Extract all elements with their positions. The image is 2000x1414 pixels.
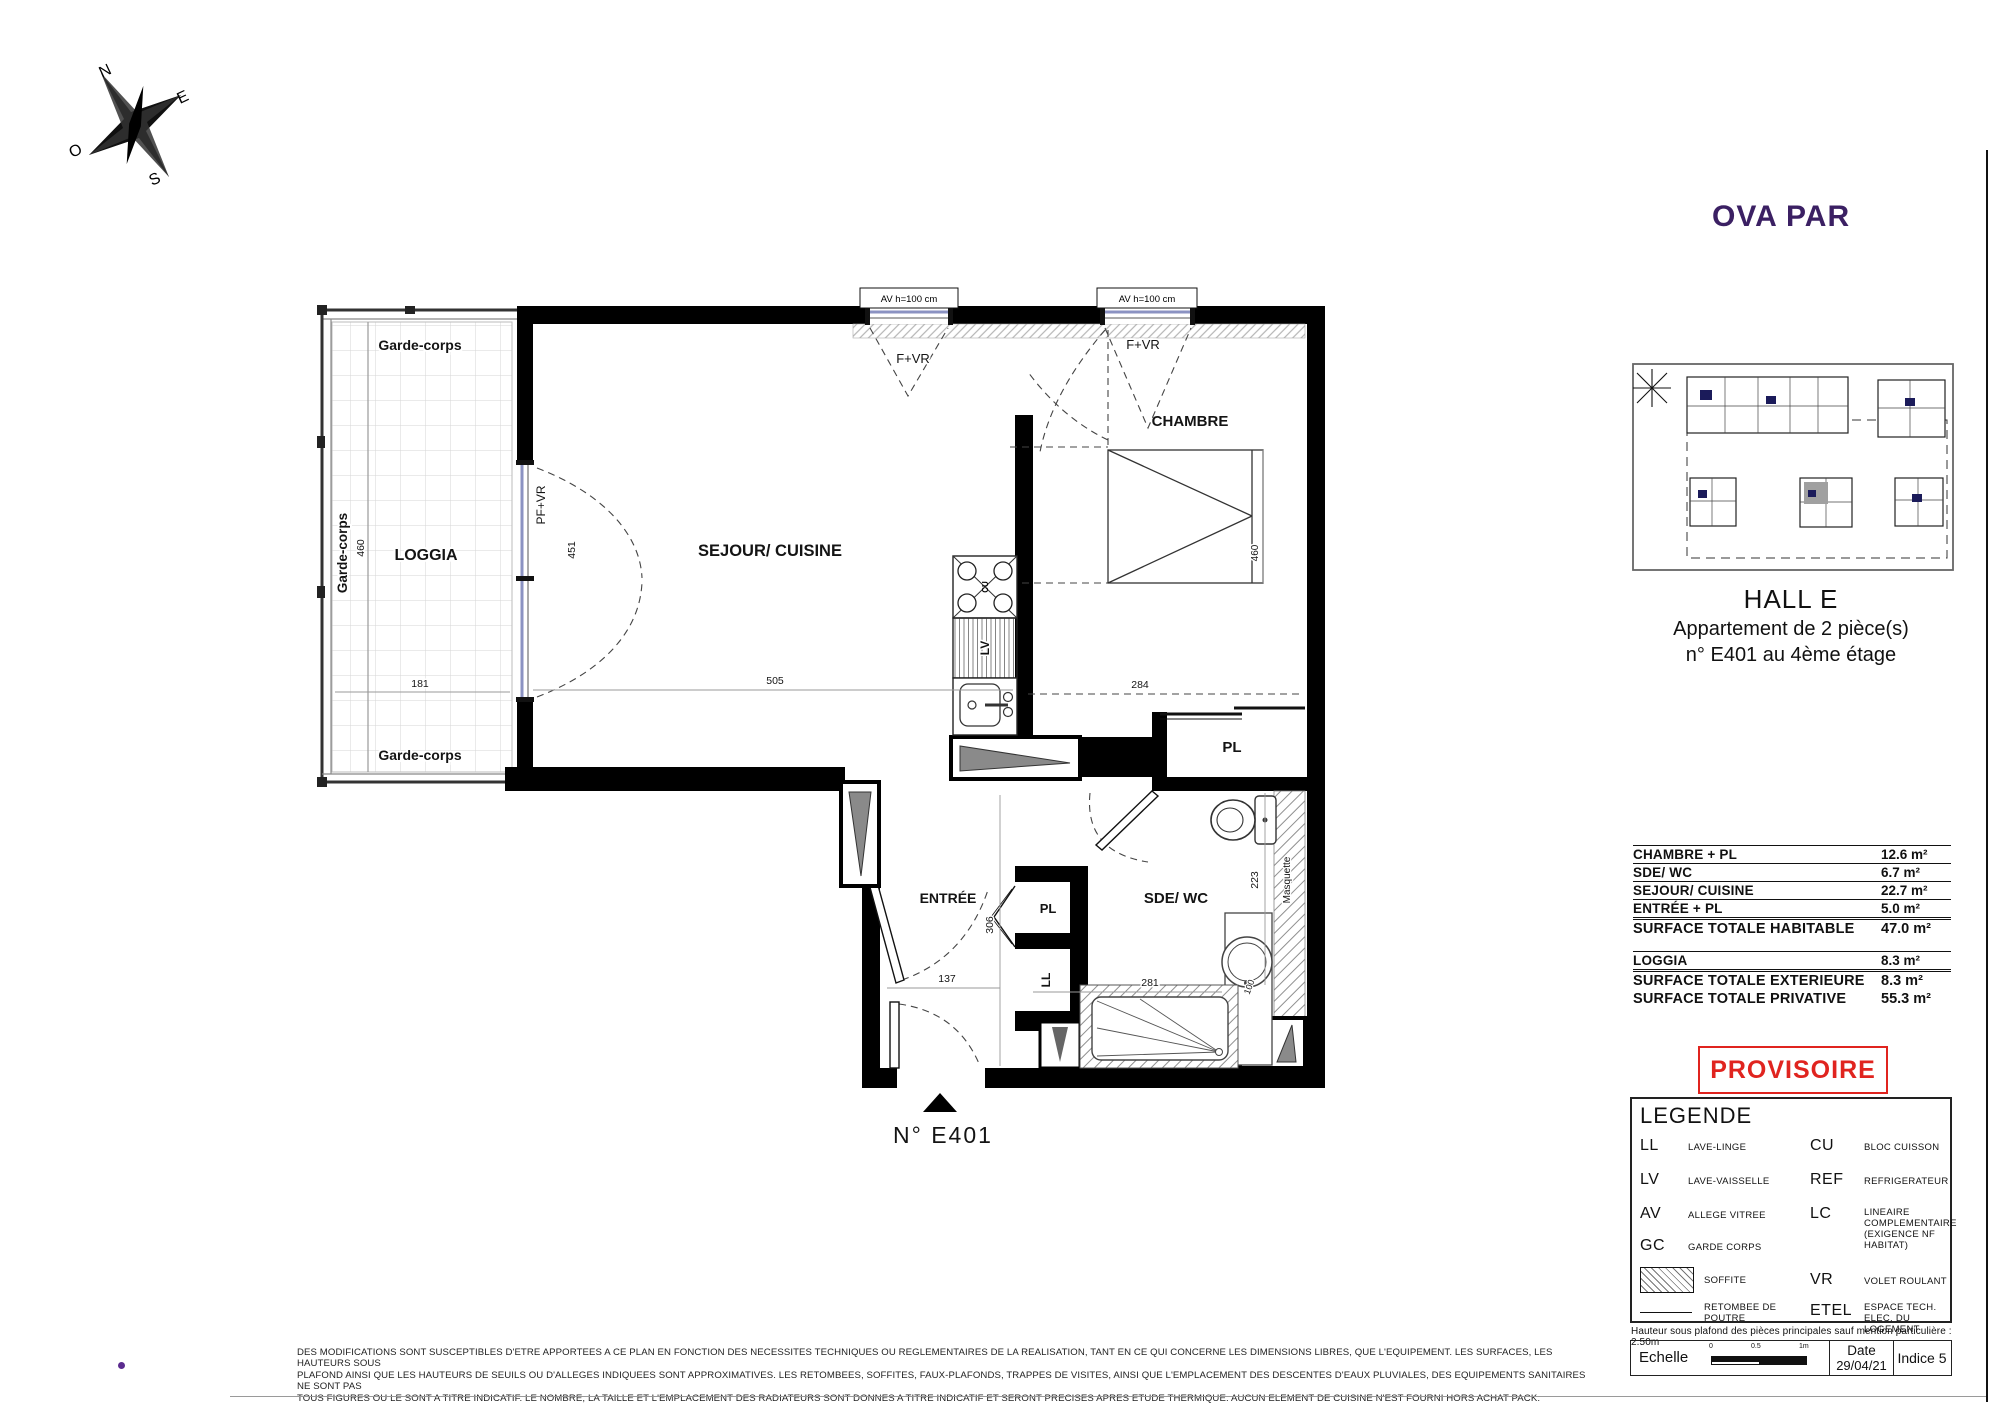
legend-etel-abbr: ETEL xyxy=(1810,1302,1852,1320)
legend-lv-desc: LAVE-VAISSELLE xyxy=(1688,1176,1769,1187)
date-label: Date xyxy=(1830,1343,1893,1358)
shower xyxy=(1080,985,1238,1068)
av-label-2: AV h=100 cm xyxy=(1119,294,1176,305)
surface-table: CHAMBRE + PL12.6 m² SDE/ WC6.7 m² SEJOUR… xyxy=(1633,845,1951,1008)
legend-box: LEGENDE LL LAVE-LINGE LV LAVE-VAISSELLE … xyxy=(1630,1097,1952,1323)
legend-cu-desc: BLOC CUISSON xyxy=(1864,1142,1939,1153)
label-garde-corps-left: Garde-corps xyxy=(335,513,350,593)
table-row: ENTRÉE + PL5.0 m² xyxy=(1633,899,1951,917)
scale-tick-0: 0 xyxy=(1709,1343,1713,1350)
toilet xyxy=(1211,796,1276,844)
scale-cell: Echelle 0 0.5 1m xyxy=(1631,1341,1829,1375)
scale-tick-05: 0.5 xyxy=(1751,1343,1761,1350)
hall-title: HALL E xyxy=(1630,584,1952,615)
apartment-type: Appartement de 2 pièce(s) xyxy=(1630,618,1952,641)
bed xyxy=(1108,450,1263,583)
lv-label: LV xyxy=(978,641,992,655)
site-plan xyxy=(1633,364,1953,570)
soffite-band xyxy=(853,324,1305,338)
label-entree: ENTRÉE xyxy=(920,890,977,906)
compass-rose-icon: N E S O xyxy=(67,61,192,189)
scale-tick-1m: 1m xyxy=(1799,1343,1809,1350)
dim-chambre-h: 460 xyxy=(1250,544,1261,561)
title-bar: Echelle 0 0.5 1m Date 29/04/21 Indice 5 xyxy=(1630,1340,1952,1376)
dim-chambre-w: 284 xyxy=(1131,679,1149,691)
table-row-total-exterieure: SURFACE TOTALE EXTERIEURE8.3 m² xyxy=(1633,972,1951,990)
label-sde: SDE/ WC xyxy=(1144,890,1208,907)
legend-lc-abbr: LC xyxy=(1810,1205,1831,1223)
legend-vr-abbr: VR xyxy=(1810,1271,1833,1289)
legend-soffite-desc: SOFFITE xyxy=(1704,1275,1746,1286)
pl-chambre-doors xyxy=(1160,708,1305,719)
legend-ll-abbr: LL xyxy=(1640,1137,1659,1155)
disclaimer-line-3: TOUS FIGURES OU LE SONT A TITRE INDICATI… xyxy=(297,1393,1587,1404)
dim-sejour-w: 505 xyxy=(766,675,784,687)
disclaimer-line-1: DES MODIFICATIONS SONT SUSCEPTIBLES D'ET… xyxy=(297,1347,1587,1370)
label-pl-chambre: PL xyxy=(1222,739,1241,756)
cu-label: CU xyxy=(981,581,990,593)
compass-n: N xyxy=(97,61,115,81)
legend-ll-desc: LAVE-LINGE xyxy=(1688,1142,1746,1153)
scale-label: Echelle xyxy=(1639,1349,1688,1366)
label-chambre: CHAMBRE xyxy=(1152,413,1229,430)
dim-loggia-h: 460 xyxy=(355,539,367,557)
dim-entree-w: 137 xyxy=(938,973,956,985)
compass-s: S xyxy=(147,170,164,190)
table-row: SEJOUR/ CUISINE22.7 m² xyxy=(1633,881,1951,899)
legend-cu-abbr: CU xyxy=(1810,1137,1834,1155)
purple-mark-icon xyxy=(118,1362,125,1369)
retombee-line-icon xyxy=(1640,1312,1692,1313)
provisoire-stamp: PROVISOIRE xyxy=(1698,1046,1888,1094)
legend-ref-abbr: REF xyxy=(1810,1171,1844,1189)
legend-ref-desc: REFRIGERATEUR xyxy=(1864,1176,1948,1187)
label-sejour: SEJOUR/ CUISINE xyxy=(698,542,842,560)
scale-bar-icon xyxy=(1711,1356,1807,1365)
door-swings xyxy=(537,328,1302,1066)
label-unit-number: N° E401 xyxy=(893,1122,993,1148)
dim-sde-w: 281 xyxy=(1141,977,1159,989)
dim-entree-h: 306 xyxy=(984,916,996,934)
brand-logo: OVA PAR xyxy=(1712,200,1850,234)
legend-lc-desc: LINEAIRE COMPLEMENTAIRE (EXIGENCE NF HAB… xyxy=(1864,1207,1952,1251)
dim-sde-h: 223 xyxy=(1249,871,1261,889)
legend-title: LEGENDE xyxy=(1640,1103,1950,1129)
label-garde-corps-bottom: Garde-corps xyxy=(378,747,461,763)
windows xyxy=(516,305,1195,702)
label-fvr-2: F+VR xyxy=(1126,337,1160,352)
hall-block: HALL E Appartement de 2 pièce(s) n° E401… xyxy=(1630,584,1952,667)
legend-vr-desc: VOLET ROULANT xyxy=(1864,1276,1947,1287)
label-pl-entree: PL xyxy=(1040,901,1057,916)
date-cell: Date 29/04/21 xyxy=(1829,1341,1893,1375)
label-pfvr: PF+VR xyxy=(534,485,548,524)
kitchen-block: CU LV xyxy=(953,556,1017,735)
label-fvr-1: F+VR xyxy=(896,351,930,366)
label-ll: LL xyxy=(1039,973,1053,988)
label-garde-corps-top: Garde-corps xyxy=(378,337,461,353)
table-row: SDE/ WC6.7 m² xyxy=(1633,863,1951,881)
legend-av-abbr: AV xyxy=(1640,1205,1661,1223)
date-value: 29/04/21 xyxy=(1830,1358,1893,1373)
table-row-total-privative: SURFACE TOTALE PRIVATIVE55.3 m² xyxy=(1633,990,1951,1008)
entrance-triangle-icon xyxy=(923,1093,957,1112)
soffite-swatch-icon xyxy=(1640,1267,1694,1293)
label-masquette: Masquette xyxy=(1282,856,1293,903)
sheet-bottom-rule xyxy=(230,1396,1986,1397)
apartment-number: n° E401 au 4ème étage xyxy=(1630,644,1952,667)
label-loggia: LOGGIA xyxy=(394,547,458,564)
legend-gc-desc: GARDE CORPS xyxy=(1688,1242,1762,1253)
table-row: CHAMBRE + PL12.6 m² xyxy=(1633,845,1951,863)
compass-e: E xyxy=(175,88,192,108)
table-row-loggia: LOGGIA8.3 m² xyxy=(1633,951,1951,972)
legend-retombee-desc: RETOMBEE DE POUTRE xyxy=(1704,1302,1784,1324)
sheet-right-border xyxy=(1986,150,1988,1402)
dim-sejour-door: 451 xyxy=(566,541,578,559)
dim-loggia-w: 181 xyxy=(411,678,429,690)
legend-av-desc: ALLEGE VITREE xyxy=(1688,1210,1766,1221)
legend-gc-abbr: GC xyxy=(1640,1237,1665,1255)
compass-o: O xyxy=(67,141,85,162)
av-label-1: AV h=100 cm xyxy=(881,294,938,305)
legend-lv-abbr: LV xyxy=(1640,1171,1659,1189)
av-boxes: AV h=100 cm AV h=100 cm xyxy=(860,288,1197,308)
indice-cell: Indice 5 xyxy=(1893,1341,1950,1375)
table-row-total-habitable: SURFACE TOTALE HABITABLE47.0 m² xyxy=(1633,917,1951,938)
floorplan-sheet: N E S O xyxy=(0,0,2000,1414)
disclaimer-line-2: PLAFOND AINSI QUE LES HAUTEURS DE SEUILS… xyxy=(297,1370,1587,1393)
